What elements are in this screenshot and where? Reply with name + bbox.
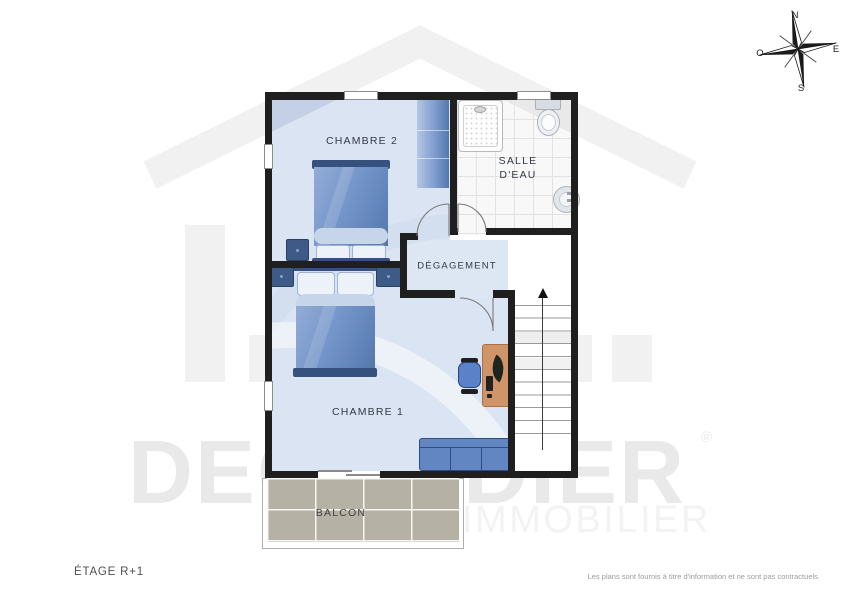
compass-west-label: O (756, 48, 763, 59)
floor-plan-page: DECORDIER ® IMMOBILIER (0, 0, 848, 600)
room-label-salle-deau-line2: D'EAU (499, 169, 536, 181)
compass-east-label: E (833, 44, 839, 55)
floor-title: ÉTAGE R+1 (74, 566, 144, 578)
compass-south-label: S (798, 83, 804, 94)
compass-rose-icon: N E O S (752, 3, 844, 95)
room-label-degagement: DÉGAGEMENT (417, 261, 497, 272)
room-label-chambre2: CHAMBRE 2 (326, 135, 398, 147)
door-arc-chambre2 (417, 204, 449, 236)
room-label-balcon: BALCON (316, 507, 366, 519)
room-label-chambre1: CHAMBRE 1 (332, 406, 404, 418)
plan-disclaimer: Les plans sont fournis à titre d'informa… (588, 572, 820, 581)
door-arc-salle-deau (458, 204, 486, 232)
door-arc-chambre1 (460, 298, 493, 331)
room-label-salle-deau-line1: SALLE (499, 155, 538, 167)
compass-north-label: N (792, 10, 799, 21)
door-swings (0, 0, 848, 600)
